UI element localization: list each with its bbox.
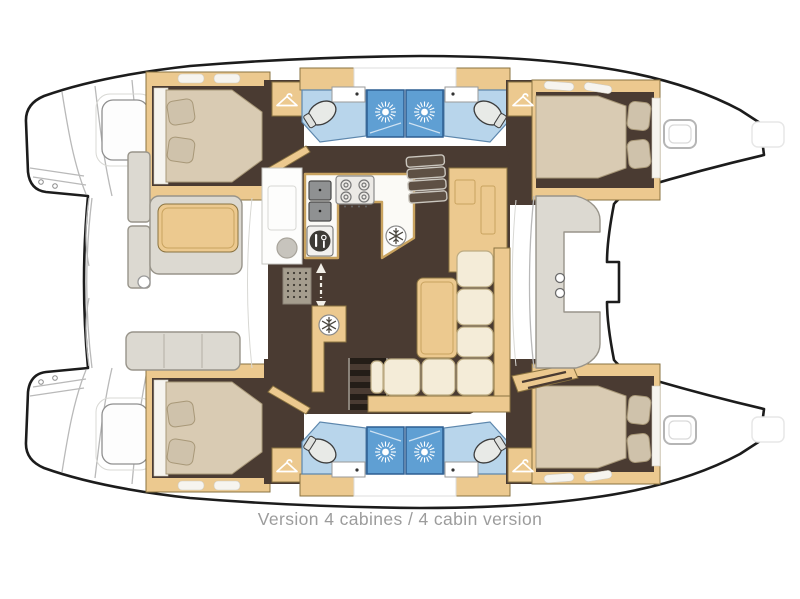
deck-fitting bbox=[138, 276, 150, 288]
entry-mat bbox=[283, 268, 311, 304]
fridge-icon bbox=[386, 226, 406, 246]
cockpit-table bbox=[158, 204, 238, 252]
saloon-table bbox=[417, 278, 457, 358]
caption: Version 4 cabines / 4 cabin version bbox=[0, 509, 800, 530]
cockpit-aft-bench bbox=[126, 332, 240, 370]
floorplan-stage: Version 4 cabines / 4 cabin version bbox=[0, 0, 800, 599]
cup-holder bbox=[556, 274, 565, 283]
oven-icon bbox=[307, 226, 333, 256]
stove-icon bbox=[336, 176, 374, 208]
cockpit-side-seat bbox=[128, 152, 150, 222]
cup-holder bbox=[556, 289, 565, 298]
fridge-icon bbox=[319, 315, 339, 335]
sink-round bbox=[277, 238, 297, 258]
